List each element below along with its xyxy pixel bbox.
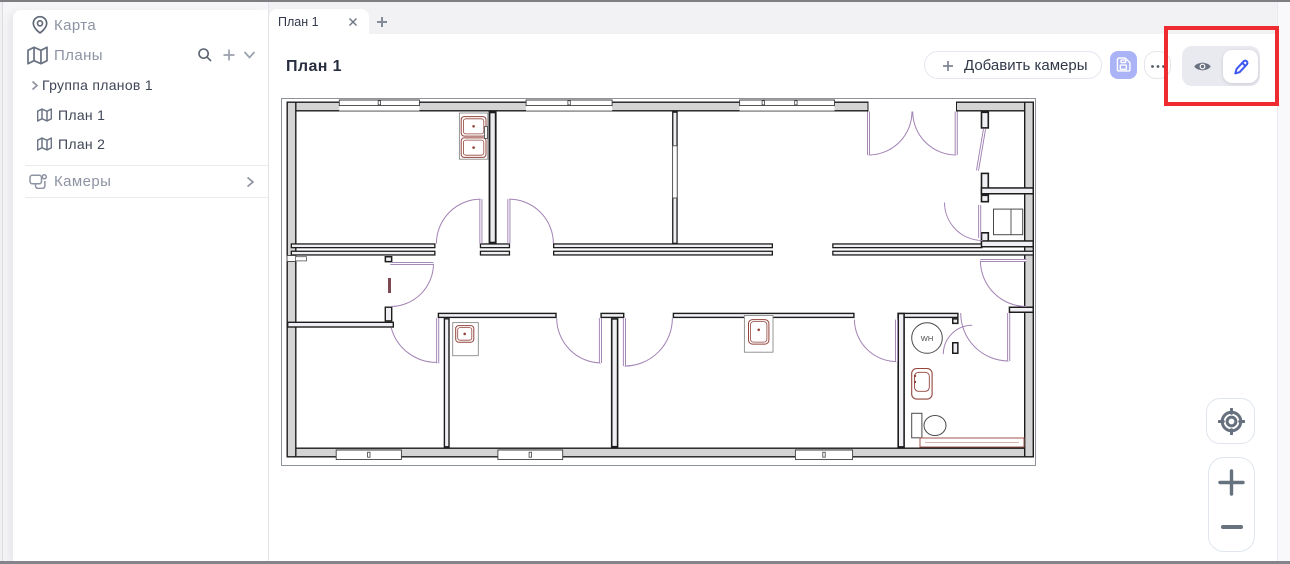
svg-text:WH: WH: [921, 334, 934, 343]
